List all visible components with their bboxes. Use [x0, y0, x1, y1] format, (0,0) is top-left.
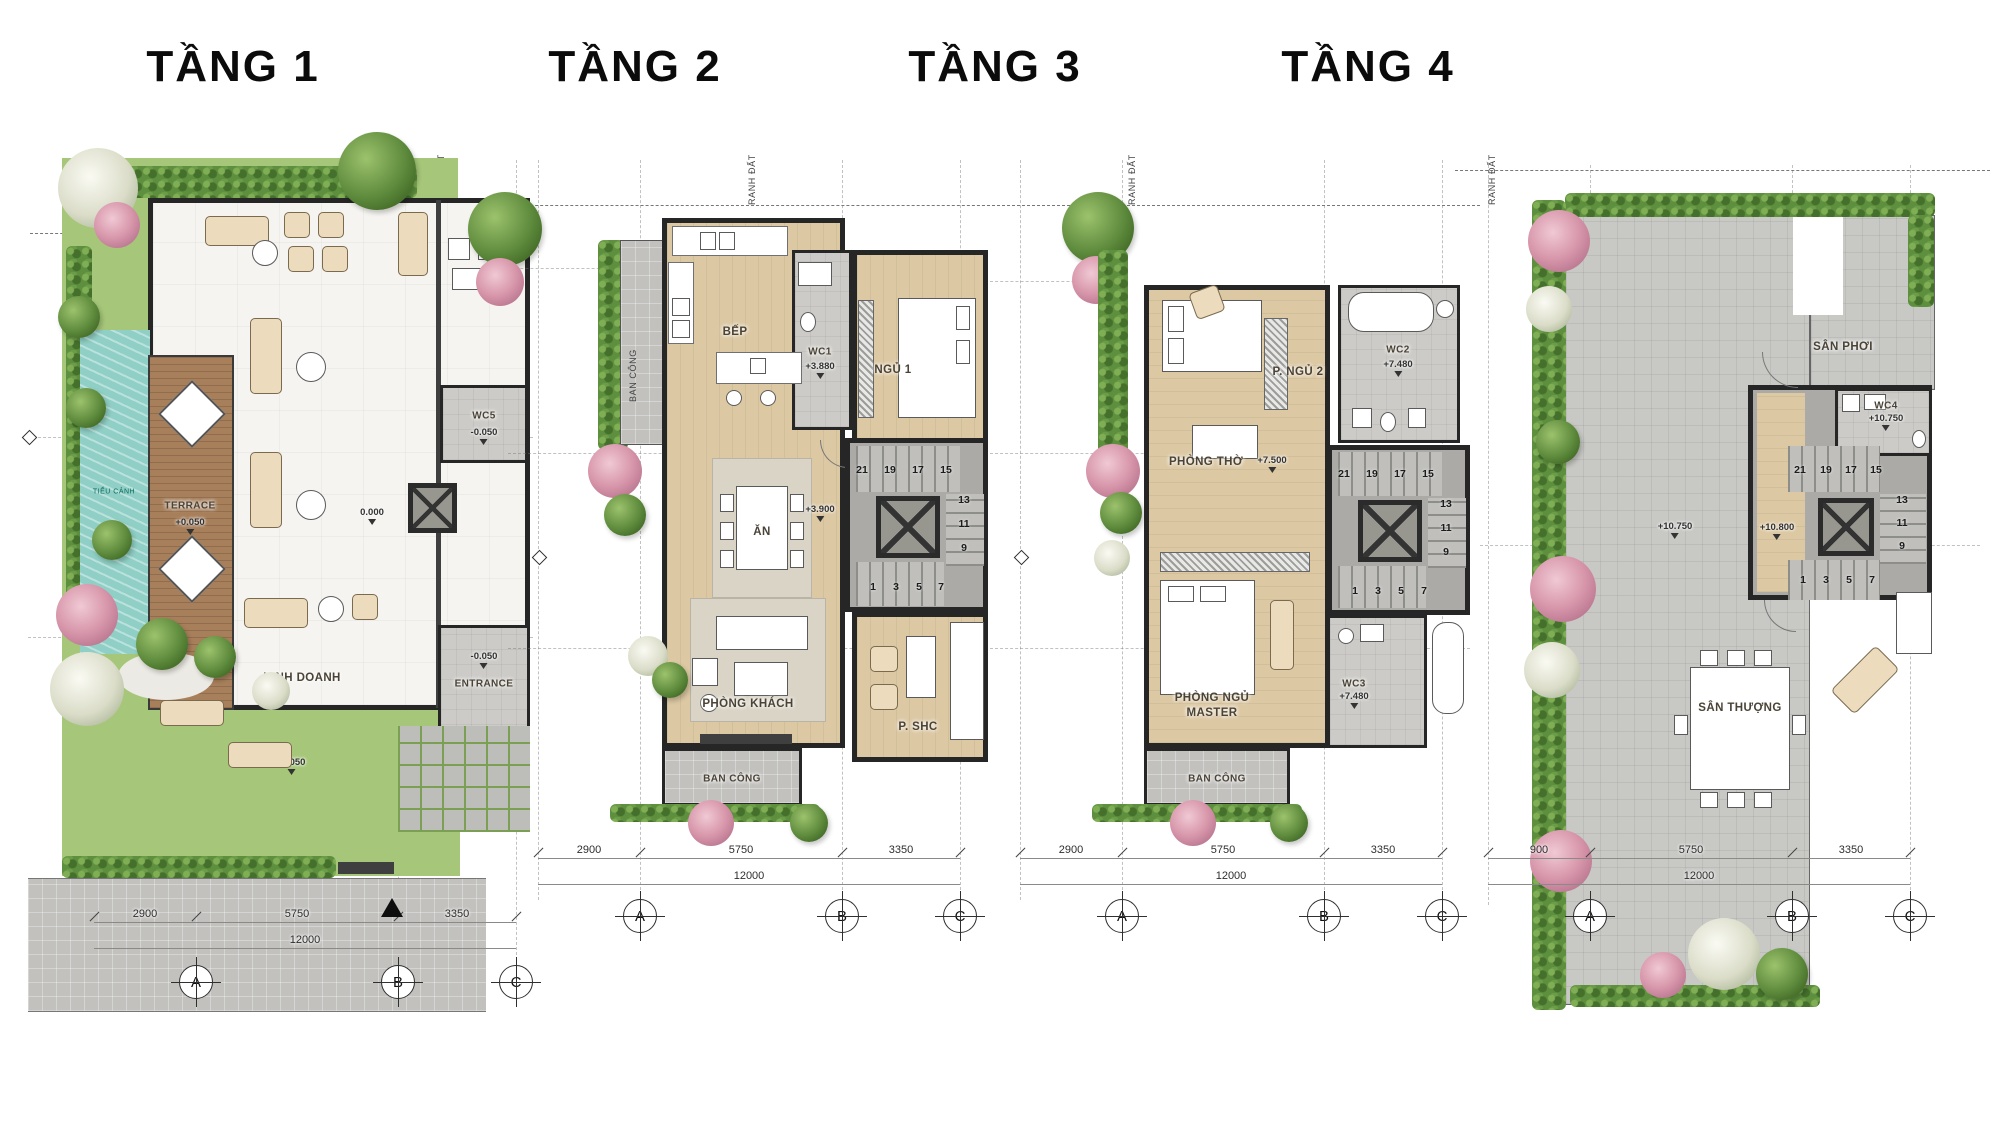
dining-table	[1690, 667, 1790, 790]
lot-line	[500, 205, 1000, 206]
stair-number: 5	[1398, 585, 1404, 597]
pouf	[870, 646, 898, 672]
flower-bush	[1526, 286, 1572, 332]
room-label-tieu-canh: TIỂU CẢNH	[93, 489, 135, 496]
lot-line	[1488, 165, 1489, 905]
room-label-wc3: WC3	[1342, 679, 1365, 690]
flower-bush	[1640, 952, 1686, 998]
room-label-wc1: WC1	[808, 347, 831, 358]
stair-number: 15	[1422, 468, 1434, 480]
dimension-label: 5750	[1679, 844, 1703, 856]
grid-bubble-b: B	[1307, 899, 1341, 933]
dimension-label: 900	[1530, 844, 1548, 856]
shower	[1352, 408, 1372, 428]
elevation-marker: -0.050	[471, 427, 498, 449]
room-label-p-shc: P. SHC	[898, 721, 937, 733]
room-label-san-thuong: SÂN THƯỢNG	[1698, 702, 1781, 714]
boundary-label: RANH ĐẤT	[1127, 154, 1137, 205]
plant	[1270, 804, 1308, 842]
grid-bubble-b: B	[825, 899, 859, 933]
elevation-value: +10.750	[1658, 521, 1693, 532]
sofa	[398, 212, 428, 276]
elevator	[1818, 498, 1874, 556]
stair-number: 13	[1440, 498, 1452, 510]
coffee-table	[906, 636, 936, 698]
coffee-table	[252, 240, 278, 266]
room-label-phong-tho: PHÒNG THỜ	[1169, 456, 1243, 468]
gate	[338, 862, 394, 874]
hedge	[1908, 215, 1934, 307]
stair-number: 11	[1440, 522, 1451, 534]
level-marker-icon	[368, 519, 376, 529]
chair	[790, 550, 804, 568]
cooktop	[672, 298, 690, 316]
tree	[50, 652, 124, 726]
level-marker-icon	[186, 529, 194, 539]
elevation-marker: 0.000	[360, 507, 384, 529]
elevator	[408, 483, 457, 533]
dimension-line	[1020, 858, 1442, 859]
plan-title-tang-4: TẦNG 4	[1281, 42, 1454, 92]
kitchen-sink	[719, 232, 735, 250]
chair	[720, 494, 734, 512]
street-paving	[28, 878, 486, 1012]
plant	[58, 296, 100, 338]
stair-number: 15	[1870, 464, 1882, 476]
room-label-ban-cong-side: BAN CÔNG	[628, 349, 638, 402]
chair	[720, 522, 734, 540]
tree	[468, 192, 542, 266]
plan-title-tang-2: TẦNG 2	[548, 42, 721, 92]
bathtub	[1348, 292, 1434, 332]
dimension-label: 5750	[1211, 844, 1235, 856]
room-label-ngu-1: NGỦ 1	[874, 364, 911, 376]
elevation-marker: +3.900	[805, 504, 834, 526]
elevation-value: +3.900	[805, 504, 834, 515]
vanity	[1408, 408, 1426, 428]
washer	[1842, 394, 1860, 412]
kitchen-sink	[700, 232, 716, 250]
level-marker-icon	[1394, 371, 1402, 381]
stair-number: 11	[958, 518, 969, 530]
chair	[720, 550, 734, 568]
bench	[1270, 600, 1294, 670]
dimension-label: 2900	[133, 908, 157, 920]
floor-plans-sheet: TẦNG 1 TẦNG 2 TẦNG 3 TẦNG 4 RANH ĐẤT RAN…	[0, 0, 2000, 1125]
grid-bubble-a: A	[179, 965, 213, 999]
dimension-line	[94, 948, 516, 949]
stair-number: 11	[1896, 517, 1907, 529]
room-label-ban-cong: BAN CÔNG	[1188, 774, 1246, 785]
elevation-value: +0.050	[175, 517, 204, 528]
toilet	[1912, 430, 1926, 448]
dimension-label: 5750	[285, 908, 309, 920]
elevation-value: +7.500	[1257, 455, 1286, 466]
elevation-value: 0.000	[360, 507, 384, 518]
section-marker-icon	[22, 430, 38, 446]
room-wc5	[440, 385, 528, 463]
stair-number: 13	[958, 494, 970, 506]
elevation-value: +7.480	[1383, 359, 1412, 370]
stair-number: 17	[1394, 468, 1406, 480]
stool	[726, 390, 742, 406]
altar-table	[1192, 425, 1258, 459]
pouf	[870, 684, 898, 710]
dimension-label: 5750	[729, 844, 753, 856]
flower-bush	[688, 800, 734, 846]
stair-number: 17	[1845, 464, 1857, 476]
outdoor-lounger	[228, 742, 292, 768]
dimension-total-label: 12000	[1216, 870, 1247, 882]
plan-title-tang-1: TẦNG 1	[146, 42, 319, 92]
stair-number: 19	[884, 464, 896, 476]
dimension-line	[1020, 884, 1442, 885]
grid-bubble-a: A	[623, 899, 657, 933]
grid-bubble-c: C	[1893, 899, 1927, 933]
level-marker-icon	[480, 439, 488, 449]
side-balcony	[620, 240, 666, 445]
stair-number: 17	[912, 464, 924, 476]
shower	[798, 262, 832, 286]
elevation-marker: +7.480	[1383, 359, 1412, 381]
hedge	[62, 856, 336, 878]
stair-number: 7	[938, 581, 944, 593]
dimension-line	[538, 884, 960, 885]
armchair	[692, 658, 718, 686]
room-label-wc4: WC4	[1874, 401, 1897, 412]
toilet	[800, 312, 816, 332]
room-label-ban-cong: BAN CÔNG	[703, 774, 761, 785]
outdoor-lounger	[160, 700, 224, 726]
chair	[1700, 792, 1718, 808]
stair-number: 9	[1443, 546, 1449, 558]
room-label-entrance: ENTRANCE	[455, 679, 514, 690]
chair	[1754, 792, 1772, 808]
grid-bubble-c: C	[943, 899, 977, 933]
sofa	[716, 616, 808, 650]
plant	[1100, 492, 1142, 534]
dimension-label: 3350	[889, 844, 913, 856]
sofa	[244, 598, 308, 628]
dimension-label: 2900	[1059, 844, 1083, 856]
room-label-an: ĂN	[753, 526, 770, 538]
pillow	[1168, 338, 1184, 364]
flower-bush	[1530, 556, 1596, 622]
level-marker-icon	[288, 769, 296, 779]
chair	[1727, 650, 1745, 666]
plant	[652, 662, 688, 698]
island-sink	[750, 358, 766, 374]
chair	[790, 522, 804, 540]
wardrobe	[858, 300, 874, 418]
plant	[1756, 948, 1808, 1000]
armchair	[448, 238, 470, 260]
flower-bush	[1528, 210, 1590, 272]
chair	[1792, 715, 1806, 735]
stair-number: 1	[1352, 585, 1358, 597]
grid-bubble-c: C	[499, 965, 533, 999]
plant	[194, 636, 236, 678]
dimension-label: 2900	[577, 844, 601, 856]
dimension-label: 3350	[1839, 844, 1863, 856]
level-marker-icon	[1671, 533, 1679, 543]
stair-number: 15	[940, 464, 952, 476]
elevation-value: +10.750	[1869, 413, 1904, 424]
elevation-marker: +3.880	[805, 361, 834, 383]
sofa	[250, 318, 282, 394]
level-marker-icon	[816, 373, 824, 383]
grid-bubble-b: B	[381, 965, 415, 999]
grid-bubble-c: C	[1425, 899, 1459, 933]
armchair	[352, 594, 378, 620]
pillow	[1168, 306, 1184, 332]
stair-number: 9	[961, 542, 967, 554]
chair	[1674, 715, 1688, 735]
elevation-marker: +7.500	[1257, 455, 1286, 477]
toilet	[1380, 412, 1396, 432]
room-label-phong-khach: PHÒNG KHÁCH	[702, 698, 793, 710]
tree	[338, 132, 416, 210]
flower-bush	[1530, 830, 1592, 892]
flower-bush	[1086, 444, 1140, 498]
pillow	[956, 306, 970, 330]
stair-number: 21	[1794, 464, 1806, 476]
armchair	[322, 246, 348, 272]
elevation-marker: +0.050	[175, 517, 204, 539]
room-label-san-phoi: SÂN PHƠI	[1813, 341, 1873, 353]
grid-bubble-a: A	[1573, 899, 1607, 933]
hedge	[1565, 193, 1935, 217]
armchair	[288, 246, 314, 272]
stair-number: 3	[1823, 574, 1829, 586]
wardrobe	[1264, 318, 1288, 410]
dimension-line	[538, 858, 960, 859]
dimension-total-label: 12000	[290, 934, 321, 946]
flower-bush	[588, 444, 642, 498]
roof-void	[1793, 215, 1843, 315]
elevation-marker: +10.750	[1869, 413, 1904, 435]
stair-number: 13	[1896, 494, 1908, 506]
flower-bush	[1170, 800, 1216, 846]
boundary-label: RANH ĐẤT	[1487, 154, 1497, 205]
plant	[136, 618, 188, 670]
room-label-wc2: WC2	[1386, 345, 1409, 356]
chair	[1727, 792, 1745, 808]
plan-title-tang-3: TẦNG 3	[908, 42, 1081, 92]
boundary-label: RANH ĐẤT	[747, 154, 757, 205]
elevation-value: +7.480	[1339, 691, 1368, 702]
dimension-label: 3350	[1371, 844, 1395, 856]
tree	[1688, 918, 1760, 990]
stair-number: 5	[916, 581, 922, 593]
level-marker-icon	[816, 516, 824, 526]
sofa	[250, 452, 282, 528]
cooktop	[672, 320, 690, 338]
plant	[604, 494, 646, 536]
elevation-value: +10.800	[1760, 522, 1795, 533]
coffee-table	[296, 490, 326, 520]
stair-number: 1	[1800, 574, 1806, 586]
sofa	[950, 622, 984, 740]
flower-bush	[94, 202, 140, 248]
stair-number: 3	[1375, 585, 1381, 597]
section-marker-icon	[532, 550, 548, 566]
sink	[1436, 300, 1454, 318]
elevation-value: -0.050	[471, 427, 498, 438]
dimension-line	[1488, 858, 1910, 859]
stair-number: 3	[893, 581, 899, 593]
chair	[1754, 650, 1772, 666]
room-label-master-line1: PHÒNG NGỦ	[1175, 692, 1250, 704]
sink	[1338, 628, 1354, 644]
stair-number: 19	[1820, 464, 1832, 476]
flower-bush	[56, 584, 118, 646]
dimension-line	[1488, 884, 1910, 885]
flower-bush	[1094, 540, 1130, 576]
pillow	[956, 340, 970, 364]
room-label-bep: BẾP	[723, 326, 748, 338]
coffee-table	[734, 662, 788, 696]
room-label-master-line2: MASTER	[1187, 707, 1238, 719]
coffee-table	[318, 596, 344, 622]
level-marker-icon	[480, 663, 488, 673]
elevation-marker: +7.480	[1339, 691, 1368, 713]
stair-number: 21	[856, 464, 868, 476]
elevation-value: -0.050	[471, 651, 498, 662]
stair-number: 19	[1366, 468, 1378, 480]
armchair	[318, 212, 344, 238]
stool	[760, 390, 776, 406]
pillow	[1168, 586, 1194, 602]
elevator	[1358, 500, 1422, 562]
grid-bubble-a: A	[1105, 899, 1139, 933]
armchair	[284, 212, 310, 238]
elevation-marker: +10.750	[1658, 521, 1693, 543]
dimension-total-label: 12000	[734, 870, 765, 882]
lot-line	[538, 160, 539, 900]
room-label-terrace: TERRACE	[164, 501, 215, 512]
stair-number: 7	[1421, 585, 1427, 597]
stair-number: 21	[1338, 468, 1350, 480]
elevation-value: +3.880	[805, 361, 834, 372]
lot-line	[1020, 160, 1021, 900]
bathtub	[1432, 622, 1464, 714]
flower-bush	[1524, 642, 1580, 698]
section-marker-icon	[1014, 550, 1030, 566]
wardrobe	[1160, 552, 1310, 572]
tv-console	[700, 734, 792, 744]
grid-bubble-b: B	[1775, 899, 1809, 933]
chair	[790, 494, 804, 512]
vanity	[1360, 624, 1384, 642]
paver-path	[398, 726, 530, 832]
lounge-chair	[1830, 645, 1899, 714]
level-marker-icon	[1350, 703, 1358, 713]
plant	[1536, 420, 1580, 464]
level-marker-icon	[1882, 425, 1890, 435]
flower-bush	[476, 258, 524, 306]
level-marker-icon	[1268, 467, 1276, 477]
stair-number: 1	[870, 581, 876, 593]
dimension-line	[94, 922, 516, 923]
stair-number: 5	[1846, 574, 1852, 586]
dimension-total-label: 12000	[1684, 870, 1715, 882]
room-label-p-ngu-2: P. NGỦ 2	[1273, 366, 1324, 378]
dimension-label: 3350	[445, 908, 469, 920]
hedge	[1098, 250, 1128, 460]
stair-number: 7	[1869, 574, 1875, 586]
plant	[66, 388, 106, 428]
elevation-marker: +10.800	[1760, 522, 1795, 544]
elevation-marker: -0.050	[471, 651, 498, 673]
elevator	[876, 496, 940, 558]
flower-bush	[252, 672, 290, 710]
chair	[1700, 650, 1718, 666]
plant	[92, 520, 132, 560]
lot-line	[982, 205, 1480, 206]
outdoor-sink	[1896, 592, 1932, 654]
entrance-arrow-icon	[381, 898, 403, 917]
level-marker-icon	[1773, 534, 1781, 544]
pillow	[1200, 586, 1226, 602]
coffee-table	[296, 352, 326, 382]
room-label-wc5: WC5	[472, 411, 495, 422]
stair-number: 9	[1899, 540, 1905, 552]
plant	[790, 804, 828, 842]
